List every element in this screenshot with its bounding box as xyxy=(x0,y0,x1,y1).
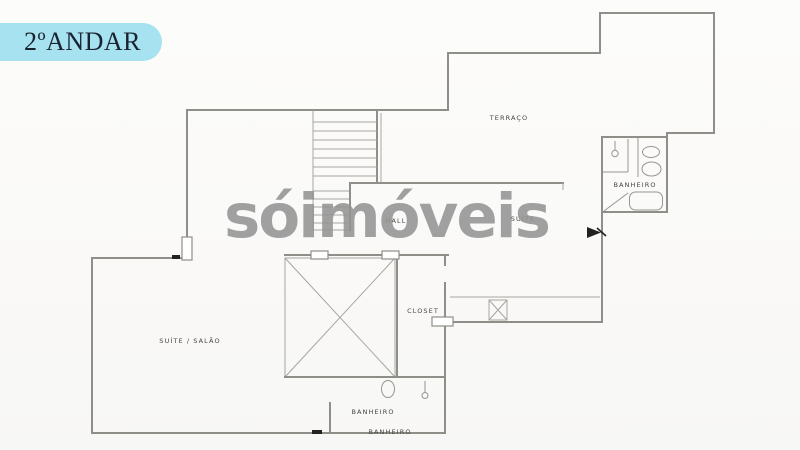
sink-icon xyxy=(643,147,660,158)
door-swing xyxy=(604,193,628,211)
window-marker xyxy=(382,251,399,259)
room-label-closet: CLOSET xyxy=(407,307,439,315)
bathroom-suite-fixtures xyxy=(603,138,663,211)
floor-badge-label: 2ºANDAR xyxy=(0,27,141,57)
window-marker xyxy=(311,251,328,259)
floor-badge: 2ºANDAR xyxy=(0,23,162,61)
door-mark xyxy=(172,255,180,259)
shower-head-icon xyxy=(422,393,428,399)
openings xyxy=(172,227,606,434)
shower-head-icon xyxy=(612,150,618,156)
room-label-banheiro-inferior: BANHEIRO xyxy=(351,408,394,416)
room-label-terraco: TERRAÇO xyxy=(489,114,529,122)
room-labels: TERRAÇO BANHEIRO HALL SUÍTE SUÍTE / SALÃ… xyxy=(159,114,656,436)
room-label-suite-salao: SUÍTE / SALÃO xyxy=(159,336,220,345)
room-label-banheiro-borda: BANHEIRO xyxy=(368,428,411,436)
bathtub-icon xyxy=(630,192,663,210)
window-marker xyxy=(432,317,453,326)
toilet-icon xyxy=(382,381,395,398)
door-jamb-marker xyxy=(182,237,192,260)
door-mark xyxy=(312,430,322,434)
toilet-icon xyxy=(642,162,661,176)
watermark: sóimóveis xyxy=(224,186,584,247)
bathroom-lower-fixtures xyxy=(382,381,429,399)
room-label-banheiro-suite: BANHEIRO xyxy=(613,181,656,189)
